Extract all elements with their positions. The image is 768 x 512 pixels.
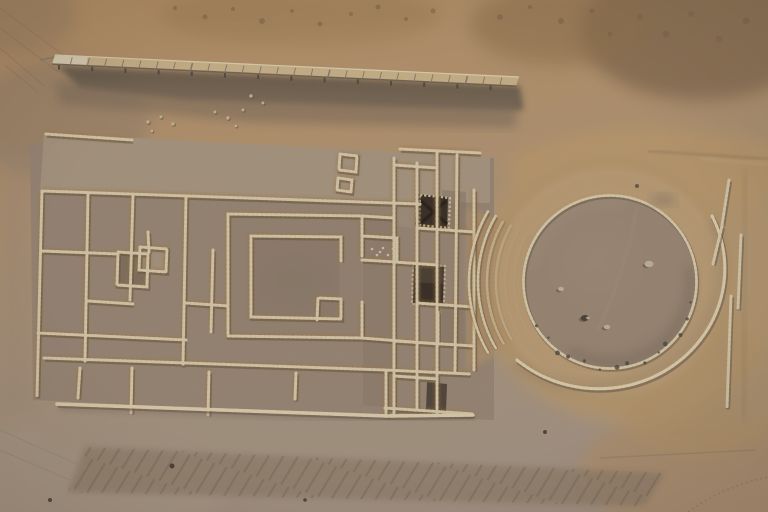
aerial-photo [0, 0, 768, 512]
site-photo [0, 0, 768, 512]
vignette [0, 0, 768, 512]
